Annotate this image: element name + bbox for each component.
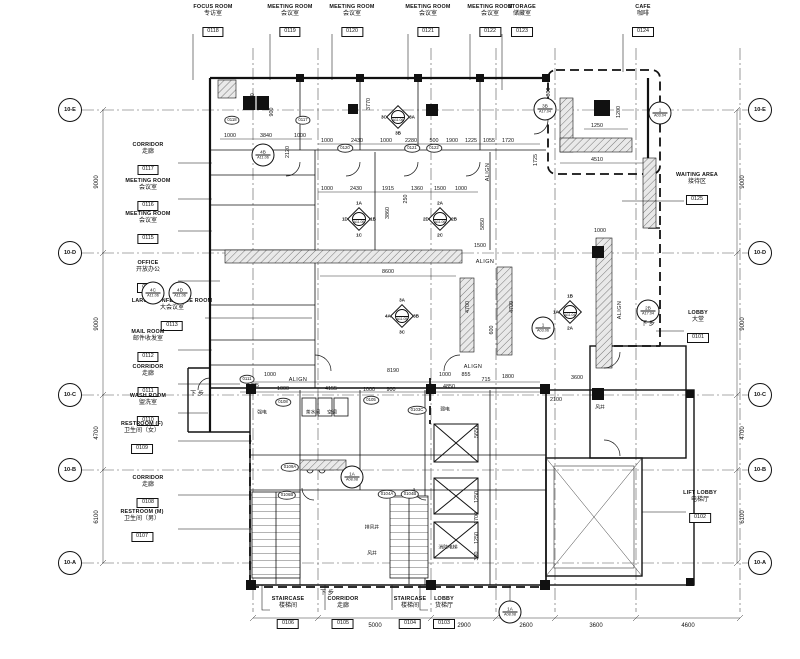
marker-letter-n: 2A — [437, 201, 443, 206]
section-marker: 1 A03.04 — [649, 102, 672, 125]
room-name-cn: 会议室 — [467, 11, 512, 19]
elevation-marker-diamond: 3A 3B 3C 4A A11.05 — [384, 298, 420, 334]
section-marker: 1 A03.06 — [532, 317, 555, 340]
room-number: 0115 — [137, 234, 159, 244]
dim-text: 8600 — [382, 269, 394, 275]
align-note: ALIGN — [617, 301, 623, 320]
sheet-ref: A17.04 — [642, 312, 654, 317]
room-number: 0107 — [131, 532, 153, 542]
room-name-en: MAIL ROOM — [131, 329, 164, 336]
room-name-cn: 专访室 — [193, 11, 232, 19]
room-number: 0121 — [417, 27, 439, 37]
elevation-marker-diamond: 2A 2B 2C 2D A11.06 — [422, 201, 458, 237]
room-name-cn: 大会议室 — [132, 305, 213, 313]
elevation-marker-diamond: 1A 1B 1C 1D A11.06 — [341, 201, 377, 237]
room-number: 0106 — [277, 619, 299, 629]
elevation-marker-diamond: 3A 3B 3C A11.06 — [380, 99, 416, 135]
room-callout-0108: CORRIDOR 走廊 0108 — [133, 475, 164, 509]
room-callout-0125: WAITING AREA 接待区 0125 — [676, 172, 718, 206]
dim-text: 1000 — [380, 138, 392, 144]
dim-text: 1900 — [446, 138, 458, 144]
dim-text: 5850 — [480, 218, 486, 230]
room-name-cn: 电梯厅 — [683, 497, 717, 505]
dim-text: 1000 — [594, 228, 606, 234]
grid-bubble-right-10B: 10-B — [748, 458, 772, 482]
dim-text: 5650 — [474, 426, 480, 438]
room-name-cn: 咖啡 — [632, 11, 654, 19]
room-name-en: STORAGE — [508, 4, 536, 11]
dim-text: 855 — [462, 372, 471, 378]
room-number: 0105 — [332, 619, 354, 629]
room-name-en: STAIRCASE — [394, 596, 427, 603]
section-marker: 1A A08.08 — [341, 466, 364, 489]
dim-text: 1720 — [502, 138, 514, 144]
door-tag: 0104B — [401, 490, 419, 499]
section-marker: 4B A11.06 — [252, 144, 275, 167]
dim-text: 600 — [489, 326, 495, 335]
room-name-cn: 邮件收发室 — [131, 336, 164, 344]
room-label-fire-lift: 消防电梯 — [438, 544, 457, 551]
dim-text: 1725 — [533, 154, 539, 166]
room-label-air-shaft: 风井 — [367, 550, 377, 557]
dim-text: 1055 — [483, 138, 495, 144]
sheet-ref: A11.06 — [392, 118, 404, 122]
grid-bubble-right-10C: 10-C — [748, 383, 772, 407]
room-name-en: LOBBY — [433, 596, 455, 603]
room-callout-0116: MEETING ROOM 会议室 0116 — [125, 178, 170, 212]
dim-text: 800 — [546, 88, 552, 97]
door-tag: 0103C — [408, 406, 427, 415]
marker-circle: A11.05 — [395, 309, 409, 323]
room-name-cn: 楼梯间 — [394, 603, 427, 611]
sheet-ref: A03.04 — [654, 114, 666, 119]
room-callout-0104: STAIRCASE 楼梯间 0104 — [394, 596, 427, 630]
marker-circle: A11.06 — [391, 110, 405, 124]
room-callout-0103: LOBBY 货梯厅 0103 — [433, 596, 455, 630]
room-name-en: LIFT LOBBY — [683, 490, 717, 497]
section-marker: 4C A11.06 — [142, 282, 165, 305]
dim-text: 1500 — [474, 243, 486, 249]
dim-text: 2430 — [351, 138, 363, 144]
dim-text: 2120 — [285, 146, 291, 158]
dim-text: 1000 — [224, 133, 236, 139]
room-label-pantry: 茶水间 — [306, 409, 320, 416]
dim-left-3: 4700 — [94, 426, 100, 439]
room-callout-0112: MAIL ROOM 邮件收发室 0112 — [131, 329, 164, 363]
door-tag: 0111 — [240, 375, 255, 384]
marker-letter-n: 1A — [356, 201, 362, 206]
room-name-cn: 货梯厅 — [433, 603, 455, 611]
skylight-shaft — [546, 458, 642, 576]
room-name-en: CORRIDOR — [133, 475, 164, 482]
room-name-en: RESTROOM (M) — [120, 509, 163, 516]
room-label-exhaust-shaft: 排风井 — [365, 524, 379, 531]
dim-text: 900 — [387, 387, 396, 393]
grid-bubble-right-10E: 10-E — [748, 98, 772, 122]
sheet-ref: A11.06 — [257, 156, 269, 161]
room-name-cn: 盥洗室 — [130, 400, 166, 408]
dim-text: 1475 — [247, 383, 259, 389]
dim-bottom-2: 5000 — [368, 623, 381, 629]
door-tag: 0121 — [404, 144, 420, 153]
elevation-marker-diamond: 1B 2A 1A A11.04 — [552, 294, 588, 330]
dim-text: 1000 — [294, 133, 306, 139]
room-name-en: WASH ROOM — [130, 393, 166, 400]
dim-right-4: 6100 — [740, 510, 746, 523]
room-name-en: CORRIDOR — [133, 142, 164, 149]
dim-text: 3840 — [260, 133, 272, 139]
dim-text: 715 — [482, 377, 491, 383]
dim-left-4: 6100 — [94, 510, 100, 523]
room-name-en: FOCUS ROOM — [193, 4, 232, 11]
elevator-shafts — [434, 424, 478, 558]
room-label-ac: 空调 — [327, 409, 337, 416]
grid-bubble-right-10D: 10-D — [748, 241, 772, 265]
room-name-en: MEETING ROOM — [125, 178, 170, 185]
room-name-cn: 储藏室 — [508, 11, 536, 19]
room-number: 0118 — [202, 27, 224, 37]
sheet-ref: A11.06 — [174, 294, 186, 299]
dim-right-3: 4700 — [740, 426, 746, 439]
room-callout-0119: MEETING ROOM 会议室 0119 — [267, 4, 312, 38]
dim-text: 1250 — [474, 532, 480, 544]
room-name-en: STAIRCASE — [272, 596, 305, 603]
dim-text: 1700 — [474, 512, 480, 524]
room-callout-0113: LARGE CONFERENCE ROOM 大会议室 0113 — [132, 298, 213, 332]
dim-text: 1800 — [502, 374, 514, 380]
dim-text: 4850 — [443, 384, 455, 390]
room-number: 0112 — [137, 352, 159, 362]
room-number: 0101 — [687, 333, 709, 343]
marker-letter-n: 3A — [399, 298, 405, 303]
room-number: 0108 — [137, 498, 159, 508]
dim-left-2: 9000 — [94, 317, 100, 330]
room-number: 0123 — [511, 27, 533, 37]
room-name-cn: 开放办公 — [136, 267, 160, 275]
door-tag: 0122 — [426, 144, 442, 153]
section-marker: 3B A17.04 — [534, 98, 557, 121]
dim-right-1: 9000 — [740, 175, 746, 188]
room-callout-0117: CORRIDOR 走廊 0117 — [133, 142, 164, 176]
step-down-note: 下 步 — [641, 319, 655, 328]
dim-text: 1000 — [455, 186, 467, 192]
room-name-en: OFFICE — [136, 260, 160, 267]
align-note: ALIGN — [289, 377, 308, 383]
grid-bubble-right-10A: 10-A — [748, 551, 772, 575]
marker-circle: A11.06 — [433, 212, 447, 226]
sheet-ref: A08.08 — [346, 478, 358, 483]
dim-text: 3600 — [571, 375, 583, 381]
step-down-note: 下 步 — [190, 389, 204, 398]
room-name-en: CORRIDOR — [133, 364, 164, 371]
align-note: ALIGN — [476, 259, 495, 265]
room-name-cn: 会议室 — [405, 11, 450, 19]
room-callout-0102: LIFT LOBBY 电梯厅 0102 — [683, 490, 717, 524]
step-down-note: 下 步 — [320, 588, 334, 597]
floorplan-canvas: 10-E 10-D 10-C 10-B 10-A 10-E 10-D 10-C … — [0, 0, 800, 659]
door-tag: 0106B — [278, 491, 296, 500]
dim-left-1: 9000 — [94, 175, 100, 188]
sheet-ref: A11.04 — [564, 313, 576, 317]
room-number: 0116 — [137, 201, 159, 211]
dim-text: 3770 — [366, 98, 372, 110]
sheet-ref: A11.06 — [353, 220, 365, 224]
door-tag: 0105 — [363, 396, 379, 405]
sheet-ref: A11.06 — [147, 294, 159, 299]
room-name-cn: 会议室 — [329, 11, 374, 19]
dim-text: 1000 — [264, 372, 276, 378]
room-name-cn: 走廊 — [133, 371, 164, 379]
door-tag: 0120 — [337, 144, 353, 153]
dim-text: 4700 — [509, 301, 515, 313]
section-marker: 1A A08.08 — [499, 601, 522, 624]
room-name-en: MEETING ROOM — [125, 211, 170, 218]
dim-text: 3860 — [385, 207, 391, 219]
room-name-cn: 会议室 — [267, 11, 312, 19]
dim-bottom-3: 2900 — [457, 623, 470, 629]
room-number: 0102 — [689, 513, 711, 523]
dim-text: 4155 — [325, 386, 337, 392]
marker-letter-s: 3B — [395, 131, 401, 136]
sheet-ref: A11.05 — [396, 317, 408, 321]
dim-text: 1250 — [474, 491, 480, 503]
room-number: 0122 — [479, 27, 501, 37]
room-name-en: CORRIDOR — [328, 596, 359, 603]
dim-text: 1915 — [382, 186, 394, 192]
room-callout-0118: FOCUS ROOM 专访室 0118 — [193, 4, 232, 38]
dim-text: 1225 — [465, 138, 477, 144]
section-marker: 4D A11.06 — [169, 282, 192, 305]
room-name-cn: 走廊 — [133, 482, 164, 490]
room-name-cn: 卫生间（女） — [121, 428, 163, 436]
room-number: 0104 — [399, 619, 421, 629]
room-callout-0120: MEETING ROOM 会议室 0120 — [329, 4, 374, 38]
dim-text: 1200 — [616, 106, 622, 118]
dim-text: 1150 — [250, 93, 256, 105]
sheet-ref: A03.06 — [537, 329, 549, 334]
room-name-en: MEETING ROOM — [329, 4, 374, 11]
dim-bottom-4: 2600 — [519, 623, 532, 629]
grid-bubble-left-10B: 10-B — [58, 458, 82, 482]
room-callout-0124: CAFE 咖啡 0124 — [632, 4, 654, 38]
room-callout-0122: MEETING ROOM 会议室 0122 — [467, 4, 512, 38]
door-tag: 0118 — [224, 116, 239, 125]
sheet-ref: A11.06 — [434, 220, 446, 224]
dim-text: 4510 — [591, 157, 603, 163]
dim-text: 900 — [269, 108, 275, 117]
dim-text: 2100 — [550, 397, 562, 403]
marker-circle: A11.04 — [563, 305, 577, 319]
dim-text: 1250 — [591, 123, 603, 129]
dim-text: 1000 — [439, 372, 451, 378]
grid-bubble-left-10D: 10-D — [58, 241, 82, 265]
room-number: 0103 — [433, 619, 455, 629]
marker-letter-n: 1B — [567, 294, 573, 299]
dim-text: 350 — [474, 552, 480, 561]
room-name-cn: 接待区 — [676, 179, 718, 187]
align-note: ALIGN — [464, 364, 483, 370]
door-tag: 0109A — [281, 463, 299, 472]
sheet-ref: A17.04 — [539, 110, 551, 115]
room-name-cn: 走廊 — [133, 149, 164, 157]
dim-text: 8190 — [387, 368, 399, 374]
staircases — [252, 492, 428, 584]
room-name-en: CAFE — [632, 4, 654, 11]
room-callout-0107: RESTROOM (M) 卫生间（男） 0107 — [120, 509, 163, 543]
room-callout-0121: MEETING ROOM 会议室 0121 — [405, 4, 450, 38]
door-tag: 0108 — [275, 398, 291, 407]
room-label-air-shaft: 风井 — [595, 404, 605, 411]
dim-text: 1000 — [363, 387, 375, 393]
grid-bubble-left-10E: 10-E — [58, 98, 82, 122]
room-name-en: MEETING ROOM — [405, 4, 450, 11]
door-tag: 0117 — [295, 116, 310, 125]
dim-text: 1360 — [411, 186, 423, 192]
room-callout-0109: RESTROOM (F) 卫生间（女） 0109 — [121, 421, 163, 455]
room-name-cn: 卫生间（男） — [120, 516, 163, 524]
room-number: 0124 — [632, 27, 654, 37]
room-label-elv: 弱电 — [440, 406, 450, 413]
dim-text: 4700 — [465, 301, 471, 313]
dim-text: 1500 — [434, 186, 446, 192]
room-callout-0115: MEETING ROOM 会议室 0115 — [125, 211, 170, 245]
room-callout-0123: STORAGE 储藏室 0123 — [508, 4, 536, 38]
align-note: ALIGN — [485, 163, 491, 182]
grid-bubble-left-10C: 10-C — [58, 383, 82, 407]
door-tag: 0104A — [378, 490, 396, 499]
room-callout-0106: STAIRCASE 楼梯间 0106 — [272, 596, 305, 630]
room-name-en: WAITING AREA — [676, 172, 718, 179]
room-name-cn: 楼梯间 — [272, 603, 305, 611]
room-callout-0105: CORRIDOR 走廊 0105 — [328, 596, 359, 630]
room-number: 0119 — [279, 27, 301, 37]
dim-right-2: 9000 — [740, 317, 746, 330]
room-number: 0109 — [131, 444, 153, 454]
marker-letter-s: 3C — [399, 330, 405, 335]
sheet-ref: A08.08 — [504, 613, 516, 618]
dim-text: 250 — [403, 195, 409, 204]
room-number: 0125 — [686, 195, 708, 205]
room-number: 0120 — [341, 27, 363, 37]
dim-text: 1000 — [321, 186, 333, 192]
room-name-en: LOBBY — [687, 310, 709, 317]
room-name-en: MEETING ROOM — [467, 4, 512, 11]
room-name-cn: 会议室 — [125, 185, 170, 193]
marker-letter-s: 2A — [567, 326, 573, 331]
room-label-electrical: 强电 — [257, 409, 267, 416]
grid-bubble-left-10A: 10-A — [58, 551, 82, 575]
room-callout-0101: LOBBY 大堂 0101 — [687, 310, 709, 344]
room-name-cn: 走廊 — [328, 603, 359, 611]
room-name-cn: 会议室 — [125, 218, 170, 226]
room-number: 0117 — [137, 165, 159, 175]
room-name-en: RESTROOM (F) — [121, 421, 163, 428]
marker-letter-s: 1C — [356, 233, 362, 238]
room-name-cn: 大堂 — [687, 317, 709, 325]
marker-circle: A11.06 — [352, 212, 366, 226]
dim-text: 1000 — [277, 386, 289, 392]
dim-bottom-6: 4600 — [681, 623, 694, 629]
dim-text: 1000 — [321, 138, 333, 144]
dim-bottom-5: 3600 — [589, 623, 602, 629]
room-name-en: MEETING ROOM — [267, 4, 312, 11]
dim-text: 2430 — [350, 186, 362, 192]
marker-letter-s: 2C — [437, 233, 443, 238]
